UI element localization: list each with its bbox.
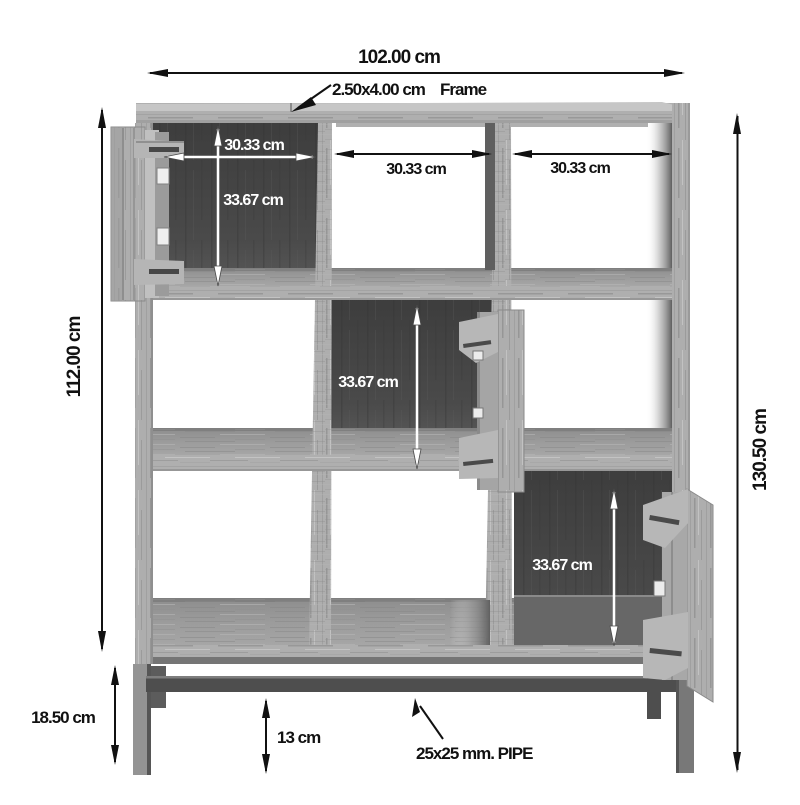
svg-text:30.33 cm: 30.33 cm [386,161,446,178]
svg-text:Frame: Frame [440,80,487,99]
svg-text:2.50x4.00 cm: 2.50x4.00 cm [332,80,426,99]
svg-text:30.33 cm: 30.33 cm [224,137,284,154]
svg-text:33.67 cm: 33.67 cm [532,557,592,574]
svg-text:13 cm: 13 cm [277,728,321,747]
svg-text:33.67 cm: 33.67 cm [338,374,398,391]
svg-text:130.50 cm: 130.50 cm [750,409,771,491]
svg-text:112.00 cm: 112.00 cm [64,316,85,397]
svg-text:30.33 cm: 30.33 cm [550,160,610,177]
svg-text:102.00 cm: 102.00 cm [358,47,440,68]
svg-text:25x25 mm. PIPE: 25x25 mm. PIPE [416,744,533,763]
svg-text:33.67 cm: 33.67 cm [223,192,283,209]
svg-text:18.50 cm: 18.50 cm [31,708,96,727]
